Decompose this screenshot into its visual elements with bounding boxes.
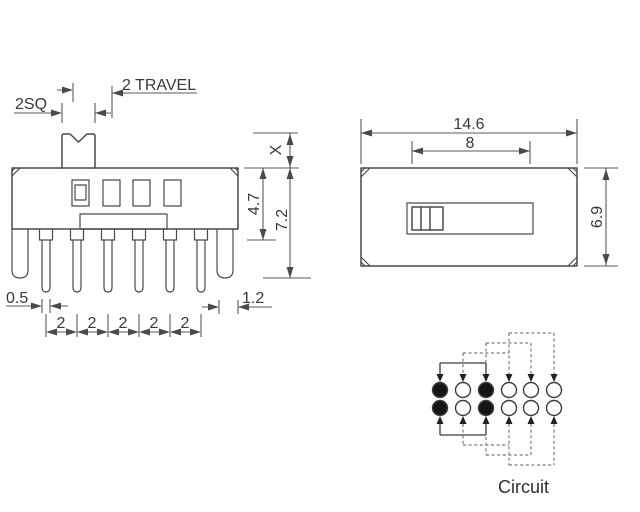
dim-label-depth: 6.9: [589, 206, 606, 228]
corner-mark: [230, 168, 238, 176]
dim-label-overall-width: 14.6: [453, 116, 484, 133]
front-view: [12, 134, 238, 292]
body-window: [103, 180, 120, 206]
pitch-label: 2: [150, 315, 159, 332]
body-window: [164, 180, 181, 206]
mounting-lug-right: [217, 229, 233, 278]
center-tab: [80, 214, 167, 229]
terminal-open: [524, 383, 539, 398]
circuit-caption: Circuit: [498, 477, 549, 497]
dim-label-knob-square: 2SQ: [15, 96, 47, 113]
switch-body-front: [12, 168, 238, 229]
mounting-lug-left: [12, 229, 28, 278]
terminal-open: [502, 383, 517, 398]
knob-ridges: [421, 207, 430, 230]
terminal-filled: [433, 383, 448, 398]
corner-mark: [568, 257, 577, 266]
bridge-dashed-bottom: [486, 424, 531, 455]
corner-mark: [361, 168, 370, 177]
corner-mark: [568, 168, 577, 177]
pitch-label: 2: [119, 315, 128, 332]
dim-label-slot-width: 8: [466, 135, 475, 152]
top-view: [361, 168, 577, 266]
contact-arrows-bottom: [437, 416, 558, 424]
terminal-open: [547, 383, 562, 398]
body-window: [133, 180, 150, 206]
dim-pin-pitch-chain: 2 2 2 2 2: [46, 314, 201, 337]
circuit-diagram: Circuit: [433, 333, 562, 497]
dim-label-knob-height: X: [268, 144, 285, 155]
pitch-label: 2: [88, 315, 97, 332]
terminal-filled: [479, 401, 494, 416]
terminal-open: [502, 401, 517, 416]
corner-mark: [12, 168, 20, 176]
terminal-open: [524, 401, 539, 416]
dim-label-pin-width: 0.5: [6, 290, 28, 307]
terminal-pins: [40, 229, 208, 292]
body-window-insert: [75, 185, 86, 200]
actuator-knob: [62, 134, 95, 168]
pitch-label: 2: [57, 315, 66, 332]
dim-label-overall-height: 7.2: [274, 209, 291, 231]
terminal-open: [547, 401, 562, 416]
terminal-open: [456, 383, 471, 398]
terminal-row-1: [433, 383, 562, 398]
top-view-dimensions: 14.6 8 6.9: [361, 116, 618, 266]
slider-knob-top: [412, 207, 443, 230]
contact-arrows-top: [437, 374, 558, 382]
terminal-filled: [433, 401, 448, 416]
pitch-label: 2: [181, 315, 190, 332]
dim-label-lug-width: 1.2: [242, 290, 264, 307]
terminal-open: [456, 401, 471, 416]
technical-drawing: 2SQ 2 TRAVEL X 4.7 7.2 0.5 1.2: [0, 0, 640, 512]
front-view-dimensions: 2SQ 2 TRAVEL X 4.7 7.2 0.5 1.2: [6, 77, 311, 337]
dim-label-body-height: 4.7: [246, 193, 263, 215]
switch-body-top: [361, 168, 577, 266]
terminal-row-2: [433, 401, 562, 416]
corner-mark: [361, 257, 370, 266]
terminal-filled: [479, 383, 494, 398]
drawing-canvas: 2SQ 2 TRAVEL X 4.7 7.2 0.5 1.2: [0, 0, 640, 512]
dim-label-travel: 2 TRAVEL: [122, 77, 196, 94]
